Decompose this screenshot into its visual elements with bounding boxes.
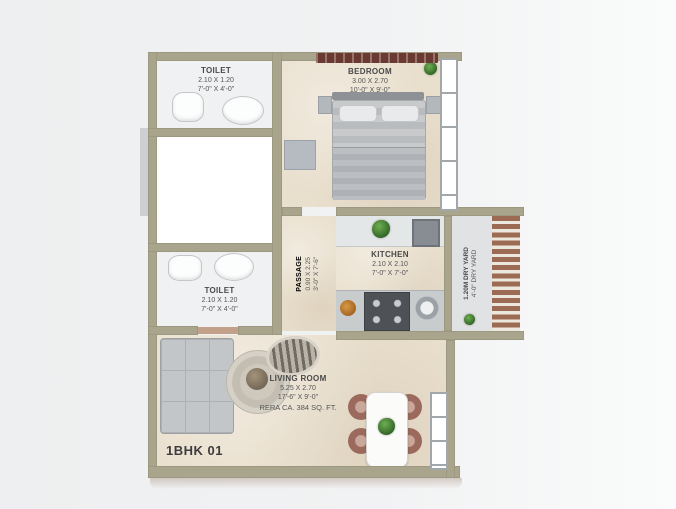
living-room-dim-ft: 17'-6" X 9'-0" xyxy=(228,393,368,402)
floorplan-canvas: TOILET 2.10 X 1.20 7'-0" X 4'-0" BEDROOM… xyxy=(0,0,676,509)
kitchen-round-sink xyxy=(414,295,440,321)
dining-window-panes xyxy=(432,394,446,468)
toilet-mid-dim-ft: 7'-0" X 4'-0" xyxy=(157,305,282,314)
toilet-mid-wc xyxy=(214,253,254,281)
bedroom-label: BEDROOM 3.00 X 2.70 10'-0" X 9'-0" xyxy=(300,67,440,95)
sofa xyxy=(160,338,234,434)
toilet-mid-dim-m: 2.10 X 1.20 xyxy=(157,296,282,305)
headboard-shelf xyxy=(316,53,438,63)
dry-yard-label: 1.20M DRY YARD 4'-0" DRY YARD xyxy=(463,247,480,300)
blanket xyxy=(333,147,425,200)
bed xyxy=(332,100,426,200)
kitchen-sink-square xyxy=(412,219,440,247)
wall-bedroom-bottom-stub xyxy=(282,207,302,216)
toilet-mid-basin xyxy=(168,255,202,281)
bedroom-window xyxy=(440,58,458,211)
bedroom-name: BEDROOM xyxy=(300,67,440,77)
dry-yard-line1: 1.20M DRY YARD xyxy=(463,247,471,300)
toilet-top-basin xyxy=(172,92,204,122)
kitchen-label: KITCHEN 2.10 X 2.10 7'-0" X 7'-0" xyxy=(336,250,444,278)
living-room-rera: RERA CA. 384 SQ. FT. xyxy=(228,403,368,413)
dry-yard-label-wrap: 1.20M DRY YARD 4'-0" DRY YARD xyxy=(450,216,492,331)
dry-yard-line2: 4'-0" DRY YARD xyxy=(471,247,479,300)
toilet-top-dim-ft: 7'-0" X 4'-0" xyxy=(157,85,275,94)
passage-name: PASSAGE xyxy=(296,256,305,292)
toilet-top-dim-m: 2.10 X 1.20 xyxy=(157,76,275,85)
plan-drop-shadow xyxy=(150,478,462,489)
nightstand-left xyxy=(318,96,332,114)
toilet-mid-label: TOILET 2.10 X 1.20 7'-0" X 4'-0" xyxy=(157,286,282,314)
living-room-dim-m: 5.25 X 2.70 xyxy=(228,384,368,393)
bedroom-dim-ft: 10'-0" X 9'-0" xyxy=(300,86,440,95)
pillow-left xyxy=(339,105,377,122)
bedroom-wardrobe xyxy=(284,140,316,170)
pillow-right xyxy=(381,105,419,122)
toilet-mid-name: TOILET xyxy=(157,286,282,296)
passage-dim-ft: 3'-0" X 7'-6" xyxy=(313,256,321,292)
bedroom-dim-m: 3.00 X 2.70 xyxy=(300,77,440,86)
kitchen-name: KITCHEN xyxy=(336,250,444,260)
nightstand-right xyxy=(426,96,441,114)
passage-dim-m: 0.90 X 2.25 xyxy=(305,256,313,292)
living-room-label: LIVING ROOM 5.25 X 2.70 17'-6" X 9'-0" R… xyxy=(228,374,368,413)
wall-bedroom-bottom xyxy=(336,207,524,216)
kitchen-dish xyxy=(340,300,356,316)
adjacent-empty-room xyxy=(157,137,275,243)
dry-yard-louvers xyxy=(492,216,520,331)
living-room-name: LIVING ROOM xyxy=(228,374,368,384)
passage-label: PASSAGE 0.90 X 2.25 3'-0" X 7'-6" xyxy=(296,256,322,292)
wall-toilet-top-bottom xyxy=(148,128,282,137)
wall-bottom xyxy=(148,466,460,478)
wall-left xyxy=(148,52,157,478)
kitchen-stove xyxy=(364,292,410,331)
kitchen-dim-ft: 7'-0" X 7'-0" xyxy=(336,269,444,278)
toilet-top-label: TOILET 2.10 X 1.20 7'-0" X 4'-0" xyxy=(157,66,275,94)
bedroom-window-panes xyxy=(442,60,456,209)
wall-empty-room-bottom xyxy=(148,243,282,252)
toilet-mid-door xyxy=(198,327,238,334)
passage-label-wrap: PASSAGE 0.90 X 2.25 3'-0" X 7'-6" xyxy=(282,216,336,331)
wall-below-kitchen xyxy=(336,331,524,340)
toilet-top-name: TOILET xyxy=(157,66,275,76)
unit-label: 1BHK 01 xyxy=(166,443,223,458)
dining-window xyxy=(430,392,448,470)
wall-toilet-mid-bottom-left xyxy=(148,326,198,335)
toilet-top-wc xyxy=(222,96,264,125)
kitchen-dim-m: 2.10 X 2.10 xyxy=(336,260,444,269)
